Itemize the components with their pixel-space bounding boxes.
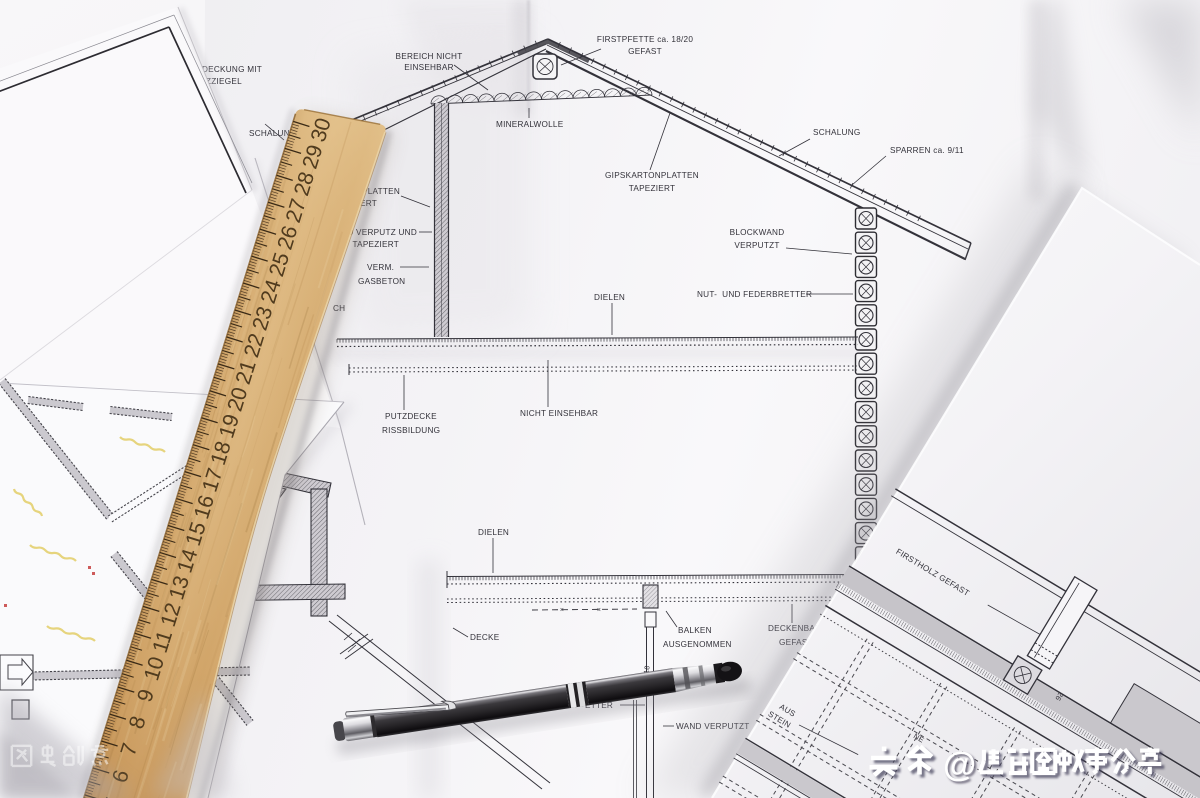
svg-text:GIPSKARTONPLATTEN: GIPSKARTONPLATTEN (605, 171, 699, 180)
svg-text:×: × (597, 607, 601, 614)
svg-text:EINSEHBAR: EINSEHBAR (404, 63, 454, 72)
svg-text:VERPUTZT: VERPUTZT (734, 241, 779, 250)
svg-text:DECKUNG MIT: DECKUNG MIT (202, 65, 262, 74)
svg-text:×: × (560, 607, 564, 614)
svg-text:AUSGENOMMEN: AUSGENOMMEN (663, 640, 732, 649)
svg-text:RISSBILDUNG: RISSBILDUNG (382, 426, 440, 435)
svg-text:GASBETON: GASBETON (358, 277, 405, 286)
svg-text:NUT- UND FEDERBRETTER: NUT- UND FEDERBRETTER (697, 290, 812, 299)
svg-text:@: @ (943, 746, 976, 784)
svg-text:DIELEN: DIELEN (478, 528, 509, 537)
svg-text:NICHT EINSEHBAR: NICHT EINSEHBAR (520, 409, 598, 418)
svg-text:FIRSTPFETTE ca. 18/20: FIRSTPFETTE ca. 18/20 (597, 35, 693, 44)
svg-text:DIELEN: DIELEN (594, 293, 625, 302)
svg-text:TAPEZIERT: TAPEZIERT (629, 184, 676, 193)
svg-text:SCHALUNG: SCHALUNG (813, 128, 861, 137)
svg-text:VERM.: VERM. (367, 263, 394, 272)
svg-text:MINERALWOLLE: MINERALWOLLE (496, 120, 564, 129)
svg-text:GEFAST: GEFAST (628, 47, 662, 56)
svg-text:PUTZDECKE: PUTZDECKE (385, 412, 437, 421)
svg-text:SPARREN ca. 9/11: SPARREN ca. 9/11 (890, 146, 964, 155)
svg-text:BEREICH NICHT: BEREICH NICHT (396, 52, 463, 61)
svg-text:DECKE: DECKE (470, 633, 500, 642)
svg-text:BLOCKWAND: BLOCKWAND (730, 228, 785, 237)
svg-text:BALKEN: BALKEN (678, 626, 712, 635)
